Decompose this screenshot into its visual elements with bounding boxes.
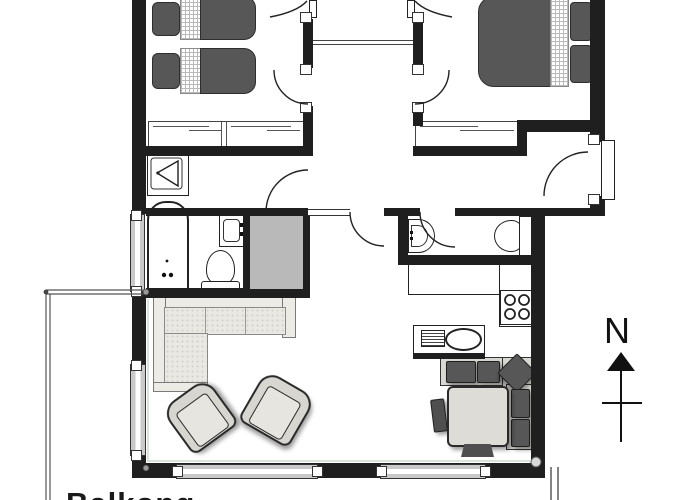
bench-cushion [511, 389, 530, 418]
bed-duvet [200, 48, 256, 94]
wall-left-upper [132, 0, 146, 214]
entrance-door-leaf [601, 140, 615, 200]
shower [147, 154, 189, 196]
bed-blanket-fold [550, 0, 569, 87]
stove [500, 290, 535, 325]
door-hinge [300, 12, 312, 23]
window-cap [172, 466, 183, 477]
wardrobe-bedroom1 [148, 121, 305, 149]
wardrobe-track [189, 130, 221, 131]
wall-bedroom2-stub-upper [413, 19, 423, 68]
wc-washbasin [408, 219, 435, 253]
kitchen-counter-sink-unit [413, 325, 485, 359]
wall-bedroom1-stub-upper [303, 19, 313, 68]
wardrobe-track [420, 126, 478, 127]
bathroom-door-threshold [308, 209, 350, 216]
bed-duvet [200, 0, 256, 40]
dining-chair-south [461, 444, 494, 457]
bathroom-cabinet [243, 209, 310, 296]
window-cap [376, 466, 387, 477]
window-cap [312, 466, 323, 477]
wall-hall-south-c [455, 208, 605, 216]
dining-table [447, 386, 509, 447]
wardrobe-track [231, 126, 291, 127]
basin-bowl [223, 219, 240, 242]
bench-cushion [446, 361, 476, 383]
sofa-chaise [164, 333, 208, 384]
vestibule-threshold [313, 40, 413, 41]
wall-bedroom1-south [146, 146, 310, 156]
wall-bedroom2-south-a [413, 146, 517, 156]
pillow [570, 45, 592, 83]
door-hinge [588, 194, 600, 205]
wardrobe-divider [221, 122, 227, 148]
single-bed-1 [150, 0, 254, 38]
kitchen-sink-basin [445, 328, 482, 351]
wardrobe-bedroom2 [415, 121, 519, 149]
double-bed [478, 0, 592, 85]
door-hinge [300, 64, 312, 75]
sink-drainer [421, 330, 445, 347]
north-arrow-icon [607, 352, 635, 371]
pillow [152, 2, 180, 36]
bench-cushion [511, 419, 530, 447]
basin-faucet [410, 231, 413, 234]
door-hinge [412, 12, 424, 23]
wall-wc-south [398, 255, 545, 265]
dining-window-south [380, 464, 486, 479]
north-arrow-shaft [620, 370, 622, 442]
window-cap [131, 450, 142, 461]
window-cap [131, 286, 142, 297]
bathroom-toilet-bowl [206, 250, 235, 285]
wardrobe-track [153, 126, 209, 127]
door-hinge [412, 102, 424, 113]
wall-bedroom2-jog [517, 120, 527, 156]
dining-chair-west [430, 398, 448, 432]
bed-blanket-fold [180, 48, 202, 94]
vestibule-threshold [313, 44, 413, 45]
wardrobe-track [460, 130, 514, 131]
basin-faucet [410, 237, 413, 240]
wall-right-lower [531, 208, 545, 478]
north-arrow-crossbar [602, 402, 642, 404]
bed-duvet [478, 0, 552, 87]
door-hinge [412, 64, 424, 75]
pillow [152, 53, 180, 89]
bathroom-window [130, 214, 145, 292]
window-cap [131, 210, 142, 221]
living-window-south [176, 464, 318, 479]
living-window-west [130, 364, 146, 456]
wall-bedroom1-stub-lower [303, 106, 313, 156]
floor-plan: N Balkong [0, 0, 700, 500]
pillow [570, 2, 592, 41]
door-hinge [588, 134, 600, 145]
single-bed-2 [150, 48, 254, 92]
sofa-seats [164, 307, 286, 335]
bed-blanket-fold [180, 0, 202, 40]
basin-bowl [411, 225, 428, 247]
north-label: N [604, 310, 630, 352]
window-cap [480, 466, 491, 477]
wall-left-mid [132, 290, 146, 366]
wall-bedroom2-south-b [517, 120, 605, 132]
window-cap [131, 360, 142, 371]
door-hinge [300, 102, 312, 113]
balcony-label: Balkong [66, 486, 195, 500]
bench-cushion [477, 361, 500, 383]
wardrobe-track [267, 130, 300, 131]
